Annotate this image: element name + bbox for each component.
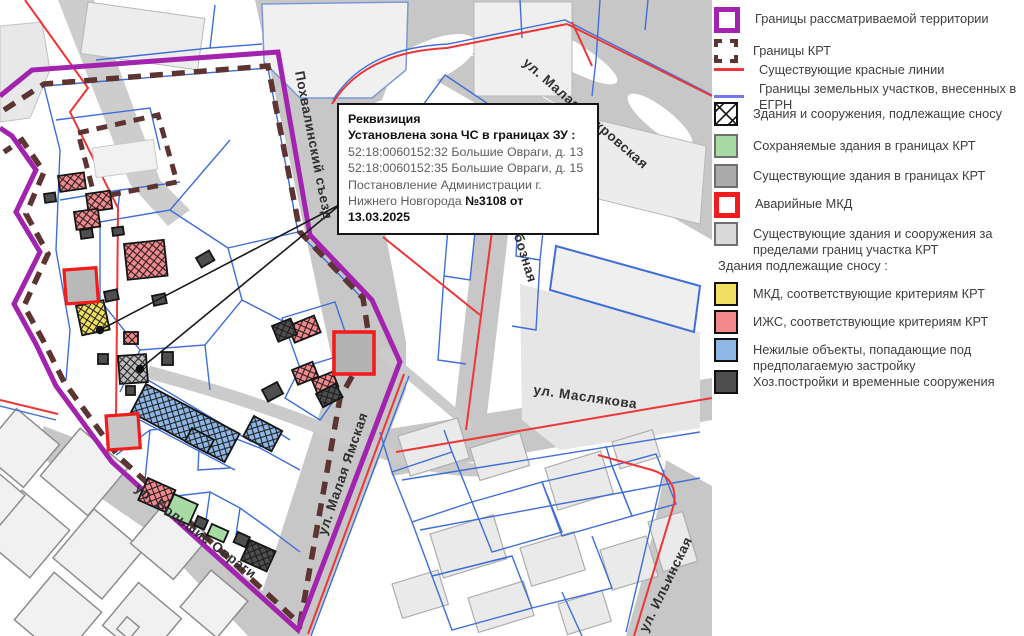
leader-dot <box>96 326 104 334</box>
legend-item-existing-in-krt: Существующие здания в границах КРТ <box>714 164 1020 188</box>
annotation-title: Реквизиция <box>348 111 588 127</box>
leader-dot <box>136 365 144 373</box>
parcel-line-swatch <box>714 95 744 98</box>
mkd-swatch <box>714 282 738 306</box>
izhs-swatch <box>714 310 738 334</box>
map-canvas: Похвалинский съезд ул. Малая Покровская … <box>0 0 712 636</box>
x-hatch-icon <box>716 104 736 124</box>
nonresidential-swatch <box>714 338 738 362</box>
krt-boundary-swatch <box>714 39 738 63</box>
annotation-leaders <box>96 204 341 373</box>
annotation-decree-line1: Постановление Администрации г. <box>348 177 588 193</box>
existing-outside-swatch <box>714 222 738 246</box>
legend-item-mkd: МКД, соответствующие критериям КРТ <box>714 282 1020 306</box>
annotation-parcel-2: 52:18:0060152:35 Большие Овраги, д. 15 <box>348 160 588 176</box>
legend-item-demolish: Здания и сооружения, подлежащие сносу <box>714 102 1020 126</box>
legend-item-krt-boundary: Границы КРТ <box>714 39 1020 63</box>
map-drawing: Похвалинский съезд ул. Малая Покровская … <box>0 0 712 636</box>
red-line-swatch <box>714 68 744 71</box>
legend-item-red-lines: Существующие красные линии <box>714 62 1020 78</box>
outbuildings-swatch <box>714 370 738 394</box>
emergency-mkd-swatch <box>714 192 740 218</box>
planning-map-screenshot: Похвалинский съезд ул. Малая Покровская … <box>0 0 1024 636</box>
demolish-swatch <box>714 102 738 126</box>
mkd-building <box>76 300 110 335</box>
legend-item-emergency-mkd: Аварийные МКД <box>714 192 1020 218</box>
preserved-swatch <box>714 134 738 158</box>
annotation-callout: Реквизиция Установлена зона ЧС в граница… <box>337 103 599 235</box>
annotation-decree-line2: Нижнего Новгорода №3108 от 13.03.2025 <box>348 193 588 226</box>
legend-item-existing-outside: Существующие здания и сооружения за пред… <box>714 222 1020 257</box>
territory-boundary-swatch <box>714 7 740 33</box>
legend-section-title: Здания подлежащие сносу : <box>718 258 888 273</box>
legend-item-outbuildings: Хоз.постройки и временные сооружения <box>714 370 1020 394</box>
legend-item-preserved: Сохраняемые здания в границах КРТ <box>714 134 1020 158</box>
legend-item-territory-boundary: Границы рассматриваемой территории <box>714 7 1020 33</box>
legend-item-izhs: ИЖС, соответствующие критериям КРТ <box>714 310 1020 334</box>
legend-item-nonresidential: Нежилые объекты, попадающие под предпола… <box>714 338 1020 373</box>
nonresidential-buildings <box>131 384 282 462</box>
annotation-parcel-1: 52:18:0060152:32 Большие Овраги, д. 13 <box>348 144 588 160</box>
existing-in-krt-swatch <box>714 164 738 188</box>
annotation-subtitle: Установлена зона ЧС в границах ЗУ : <box>348 127 588 143</box>
